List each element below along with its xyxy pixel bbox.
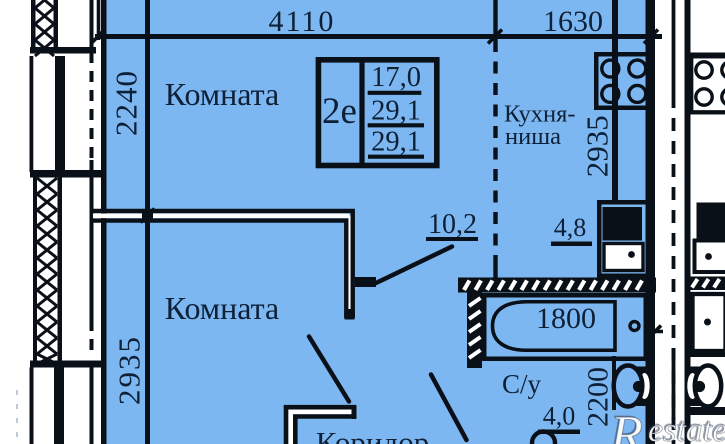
svg-text:1800: 1800 xyxy=(536,302,596,335)
svg-text:29,1: 29,1 xyxy=(371,127,421,158)
svg-text:29,1: 29,1 xyxy=(371,96,421,127)
svg-text:2е: 2е xyxy=(322,91,357,132)
svg-text:10,2: 10,2 xyxy=(428,209,477,240)
svg-text:Комната: Комната xyxy=(165,290,279,326)
svg-text:2935: 2935 xyxy=(112,335,147,405)
svg-text:4,0: 4,0 xyxy=(543,402,576,431)
svg-text:4110: 4110 xyxy=(269,5,336,38)
svg-text:17,0: 17,0 xyxy=(371,62,421,93)
svg-text:ниша: ниша xyxy=(505,123,561,150)
svg-text:Коридор: Коридор xyxy=(316,425,430,444)
svg-text:1630: 1630 xyxy=(543,5,603,38)
svg-text:2935: 2935 xyxy=(580,115,615,177)
svg-text:estate: estate xyxy=(648,412,725,444)
svg-text:2240: 2240 xyxy=(109,70,144,136)
svg-text:R: R xyxy=(609,405,643,444)
svg-text:4,8: 4,8 xyxy=(554,213,587,242)
svg-text:Комната: Комната xyxy=(165,76,279,112)
svg-text:С/у: С/у xyxy=(502,369,542,399)
